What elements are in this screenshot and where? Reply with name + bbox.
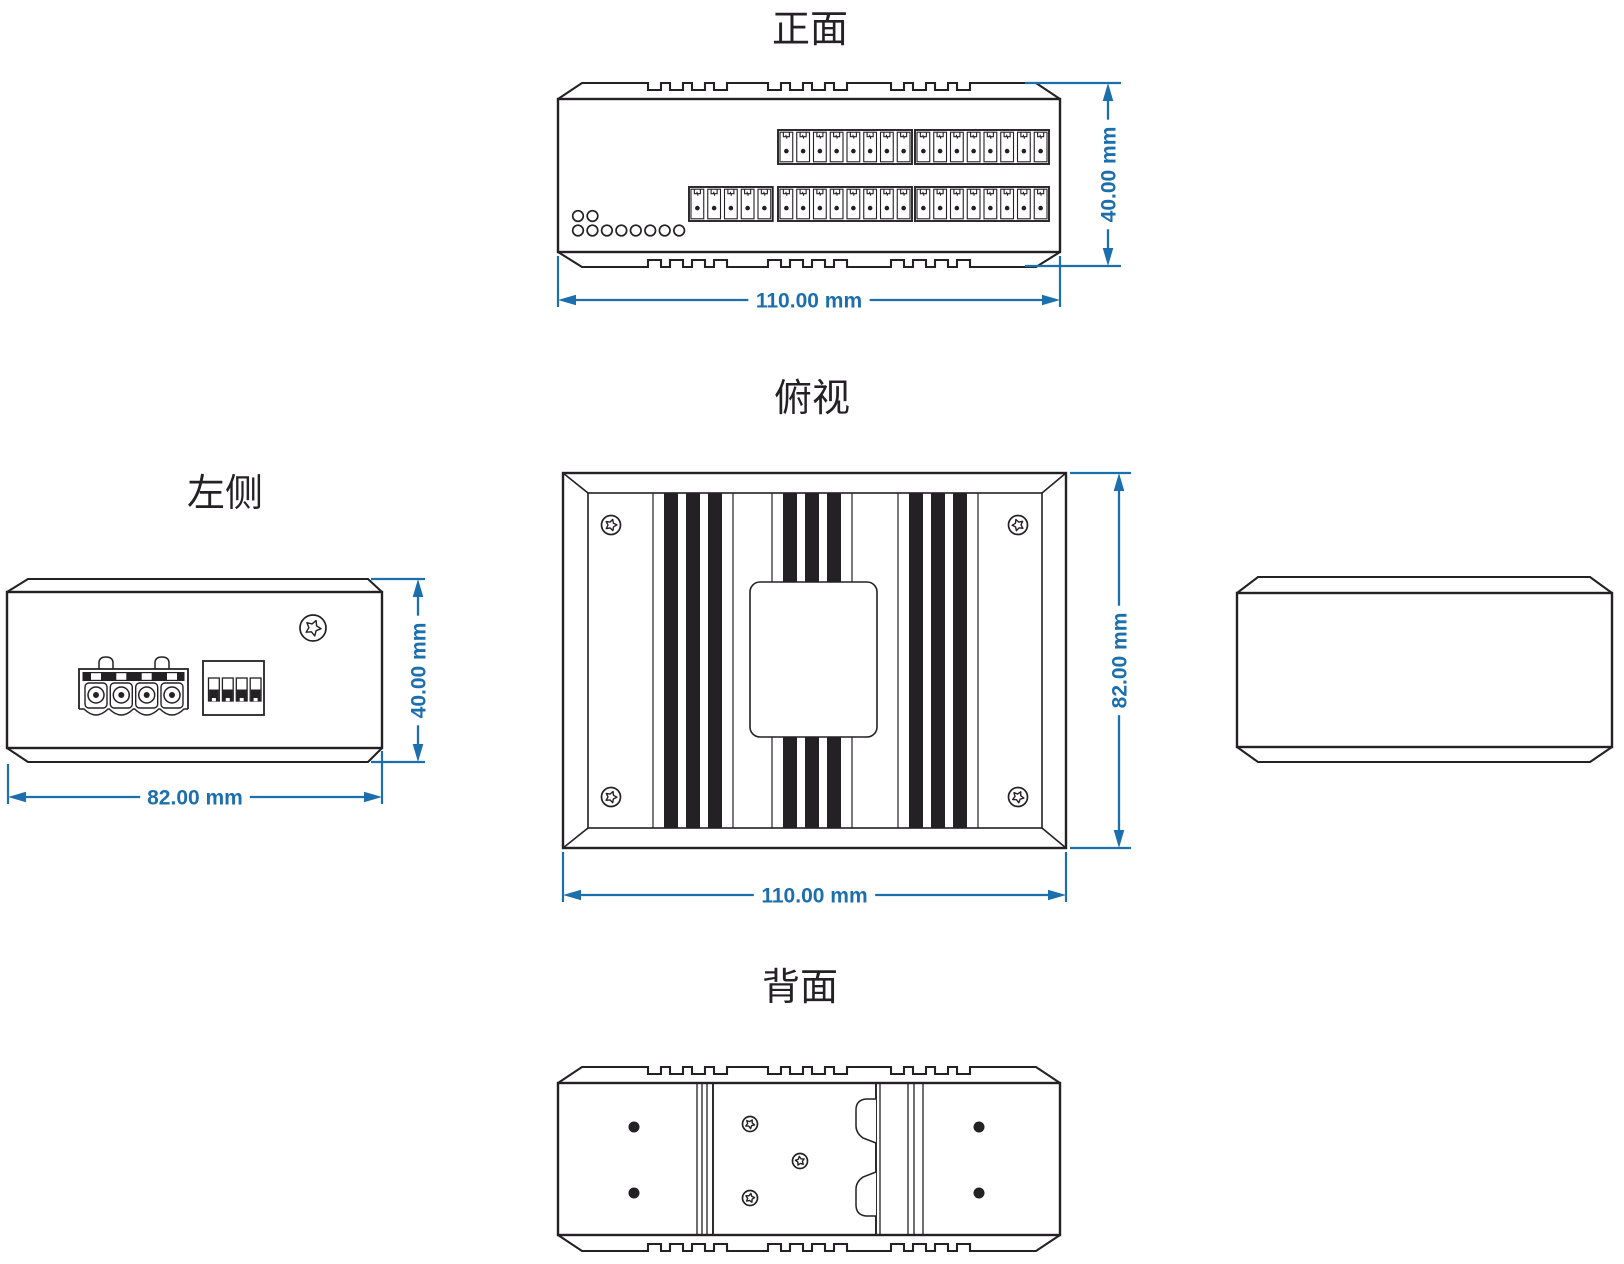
screw-icon	[602, 516, 621, 535]
terminal-block	[915, 187, 1049, 221]
top-device	[563, 473, 1066, 848]
front-height-dimension-label: 40.00 mm	[1098, 127, 1121, 223]
view-top: 俯视 110.00 mm 82.00 mm	[563, 376, 1132, 908]
back-view-title: 背面	[762, 965, 838, 1009]
left-view-title: 左侧	[187, 471, 263, 515]
view-front: 正面 110.00 mm 40.00 mm	[558, 7, 1121, 313]
front-view-title: 正面	[772, 7, 848, 51]
screw-icon	[743, 1117, 758, 1132]
back-device	[558, 1067, 1060, 1251]
left-width-dimension-label: 82.00 mm	[147, 787, 243, 810]
mechanical-drawing-canvas: 正面 110.00 mm 40.00 mm 俯视 110.00 mm 82.00…	[0, 0, 1624, 1264]
drawing-svg: 正面 110.00 mm 40.00 mm 俯视 110.00 mm 82.00…	[0, 0, 1624, 1264]
left-device	[7, 579, 382, 762]
left-height-dimension-label: 40.00 mm	[408, 623, 431, 719]
view-left: 左侧 82.00 mm 40.00 mm	[7, 471, 431, 810]
screw-icon	[793, 1154, 808, 1169]
screw-icon	[300, 615, 326, 641]
top-width-dimension-label: 110.00 mm	[761, 885, 867, 908]
front-device	[558, 83, 1060, 267]
view-right	[1237, 577, 1612, 762]
mounting-hole	[974, 1188, 985, 1199]
mounting-hole	[629, 1122, 640, 1133]
front-width-dimension-label: 110.00 mm	[756, 290, 862, 313]
top-view-title: 俯视	[774, 376, 850, 420]
mounting-hole	[629, 1188, 640, 1199]
terminal-block	[778, 130, 912, 164]
screw-icon	[1009, 788, 1028, 807]
terminal-block	[689, 187, 773, 221]
label-plate	[750, 582, 877, 737]
view-back: 背面	[558, 965, 1060, 1251]
right-device	[1237, 577, 1612, 762]
screw-icon	[602, 788, 621, 807]
terminal-block	[778, 187, 912, 221]
mounting-hole	[974, 1122, 985, 1133]
screw-icon	[743, 1191, 758, 1206]
screw-icon	[1009, 516, 1028, 535]
terminal-block	[915, 130, 1049, 164]
dip-switch	[203, 661, 264, 715]
top-height-dimension-label: 82.00 mm	[1109, 613, 1132, 709]
